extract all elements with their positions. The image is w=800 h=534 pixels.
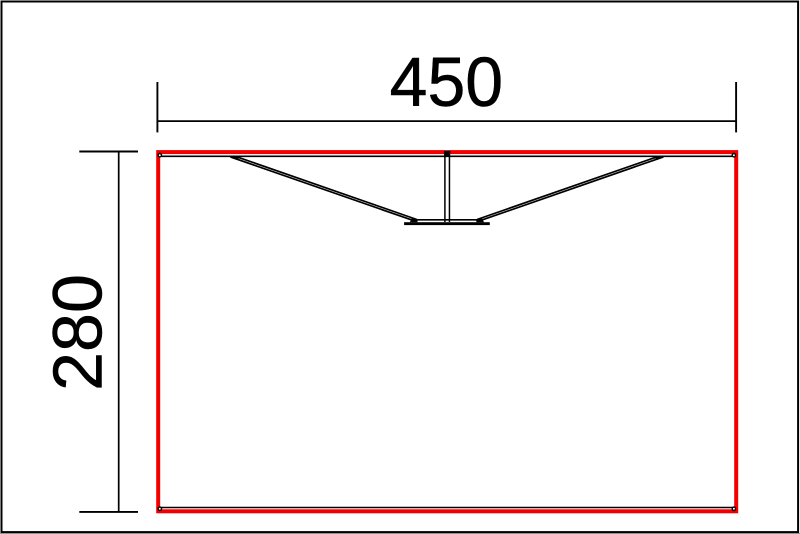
svg-text:450: 450 [390,43,504,121]
svg-text:280: 280 [39,274,117,391]
